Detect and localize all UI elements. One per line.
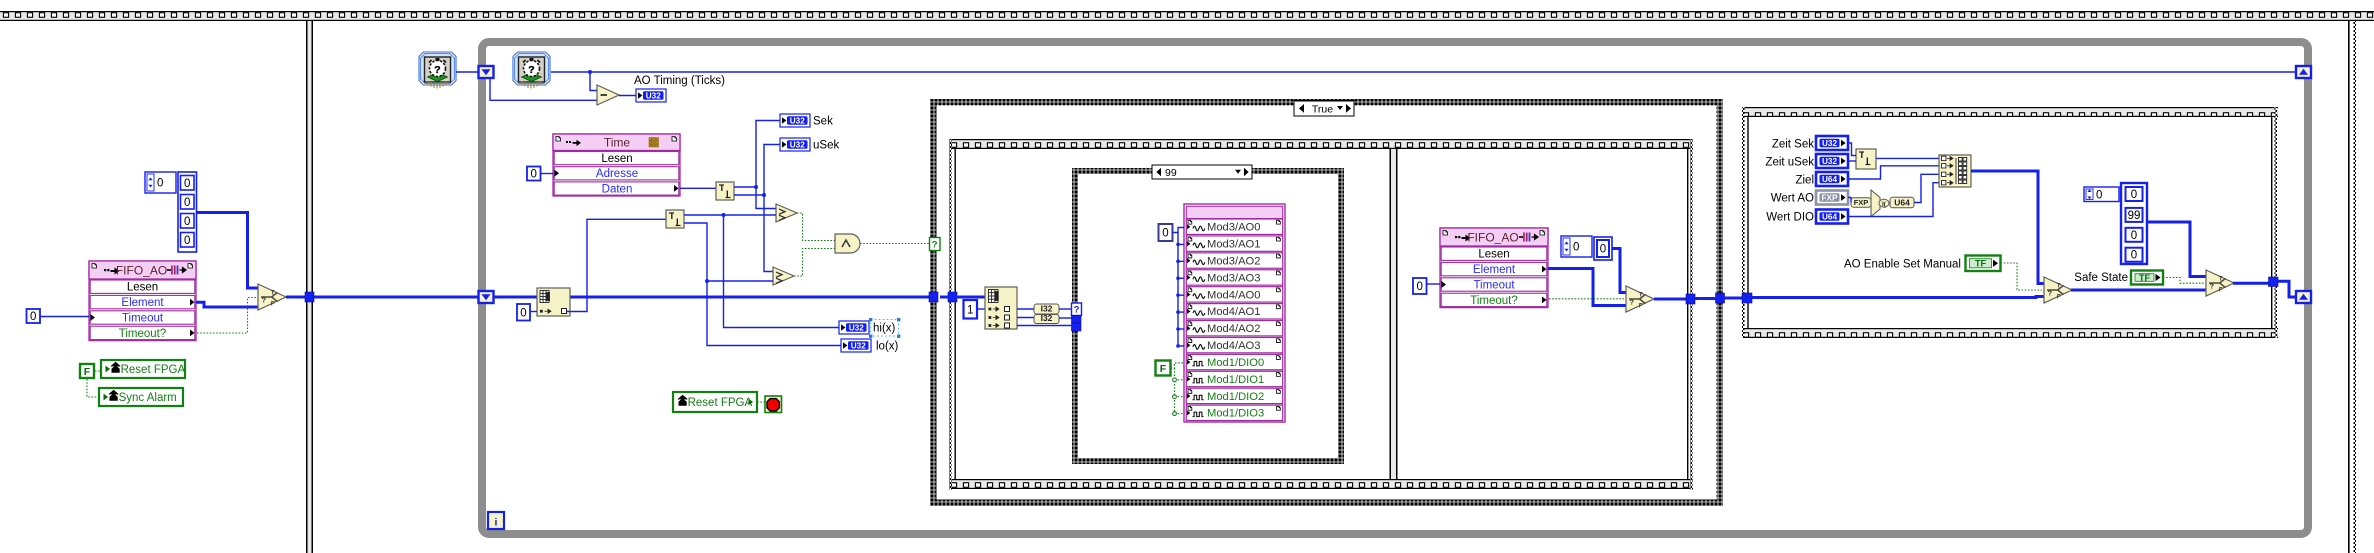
svg-text:F: F [84,366,91,378]
svg-text:0: 0 [157,178,163,190]
svg-text:AO Enable Set Manual: AO Enable Set Manual [1844,259,1961,271]
svg-text:FXP: FXP [1854,198,1869,207]
svg-text:Lesen: Lesen [127,282,158,294]
svg-text:U32: U32 [1822,157,1837,166]
svg-text:U32: U32 [851,342,866,351]
svg-text:Sync Alarm: Sync Alarm [119,392,177,404]
svg-text:?: ? [2210,282,2215,291]
svg-text:I32: I32 [1041,313,1053,323]
svg-text:F: F [1639,304,1643,310]
svg-text:Mod3/AO0: Mod3/AO0 [1207,222,1260,234]
svg-text:TF: TF [2139,273,2150,283]
svg-text:TF: TF [1975,259,1986,269]
svg-text:U32: U32 [849,324,864,333]
svg-text:Mod1/DIO0: Mod1/DIO0 [1207,357,1264,369]
svg-text:Mod4/AO0: Mod4/AO0 [1207,289,1260,301]
svg-text:Mod4/AO1: Mod4/AO1 [1207,306,1260,318]
svg-text:99: 99 [1165,167,1177,179]
svg-text:Reset FPGA: Reset FPGA [688,397,753,409]
svg-text:FIFO_AO: FIFO_AO [116,264,167,278]
svg-text:Lesen: Lesen [601,153,632,165]
svg-text:F: F [271,302,275,308]
svg-text:Adresse: Adresse [596,168,638,180]
svg-text:0: 0 [184,235,190,247]
svg-text:I32: I32 [1041,304,1053,314]
svg-text:F: F [1160,363,1167,375]
svg-text:0: 0 [2131,189,2137,201]
svg-text:?: ? [434,64,440,76]
svg-text:Element: Element [121,297,164,309]
svg-text:I: I [726,189,729,200]
svg-text:AO Timing (Ticks): AO Timing (Ticks) [634,75,725,87]
svg-text:?: ? [2048,289,2053,298]
svg-text:?: ? [1630,298,1635,307]
svg-text:0: 0 [184,178,190,190]
svg-text:Mod3/AO2: Mod3/AO2 [1207,255,1260,267]
svg-text:FXP: FXP [1822,194,1838,203]
svg-text:0: 0 [184,216,190,228]
svg-text:Reset FPGA: Reset FPGA [121,364,186,376]
svg-text:0: 0 [1417,281,1423,293]
svg-text:uSek: uSek [813,140,839,152]
svg-text:Time: Time [604,136,631,150]
svg-text:lo(x): lo(x) [876,341,899,353]
svg-text:I: I [1866,156,1869,167]
svg-text:U64: U64 [1822,175,1837,184]
svg-text:0: 0 [2096,189,2102,201]
svg-text:Wert DIO: Wert DIO [1766,212,1814,224]
svg-text:0: 0 [30,311,36,323]
svg-text:0: 0 [2131,230,2137,242]
svg-text:U32: U32 [646,92,661,101]
svg-text:Timeout: Timeout [1473,279,1515,291]
svg-text:Safe State: Safe State [2074,272,2128,284]
svg-text:Ziel: Ziel [1795,175,1814,187]
svg-text:Mod3/AO1: Mod3/AO1 [1207,239,1260,251]
svg-text:T: T [2219,276,2223,282]
svg-text:Lesen: Lesen [1478,249,1509,261]
svg-text:0: 0 [184,197,190,209]
svg-text:Mod1/DIO3: Mod1/DIO3 [1207,408,1264,420]
svg-text:Mod3/AO3: Mod3/AO3 [1207,272,1260,284]
svg-text:FIFO_AO: FIFO_AO [1467,231,1518,245]
svg-text:0: 0 [1162,228,1168,240]
svg-text:0: 0 [1573,242,1579,254]
svg-text:T: T [2057,283,2061,289]
svg-text:U32: U32 [1822,139,1837,148]
svg-text:Element: Element [1473,264,1516,276]
svg-text:U64: U64 [1894,197,1910,207]
svg-text:F: F [2057,295,2061,301]
svg-text:Mod1/DIO2: Mod1/DIO2 [1207,391,1264,403]
svg-text:Sek: Sek [813,116,833,128]
svg-text:Zeit uSek: Zeit uSek [1765,157,1814,169]
svg-text:U32: U32 [790,141,805,150]
svg-text:True: True [1312,104,1333,116]
svg-text:0: 0 [2131,250,2137,262]
svg-text:Daten: Daten [602,183,633,195]
svg-text:T: T [1639,292,1643,298]
svg-text:Mod4/AO3: Mod4/AO3 [1207,340,1260,352]
svg-text:?: ? [1074,305,1080,316]
svg-text:i: i [495,517,498,529]
svg-text:U32: U32 [790,117,805,126]
svg-text:?: ? [262,296,267,305]
svg-text:Timeout?: Timeout? [1470,295,1518,307]
svg-text:Timeout?: Timeout? [119,328,167,340]
svg-text:0: 0 [520,307,526,319]
svg-text:Mod1/DIO1: Mod1/DIO1 [1207,374,1264,386]
svg-text:Wert AO: Wert AO [1771,193,1814,205]
svg-text:Timeout: Timeout [122,312,164,324]
svg-text:99: 99 [2128,210,2141,222]
svg-text:?: ? [932,240,938,251]
svg-text:F: F [2219,288,2223,294]
svg-text:T: T [271,290,275,296]
svg-text:0: 0 [531,169,537,181]
svg-text:1: 1 [967,304,973,316]
svg-text:Zeit Sek: Zeit Sek [1772,139,1814,151]
svg-text:0: 0 [1600,244,1606,256]
svg-text:I: I [676,217,679,228]
svg-text:hi(x): hi(x) [873,323,896,335]
svg-text:?: ? [528,64,534,76]
svg-text:Mod4/AO2: Mod4/AO2 [1207,323,1260,335]
svg-text:U64: U64 [1822,213,1837,222]
